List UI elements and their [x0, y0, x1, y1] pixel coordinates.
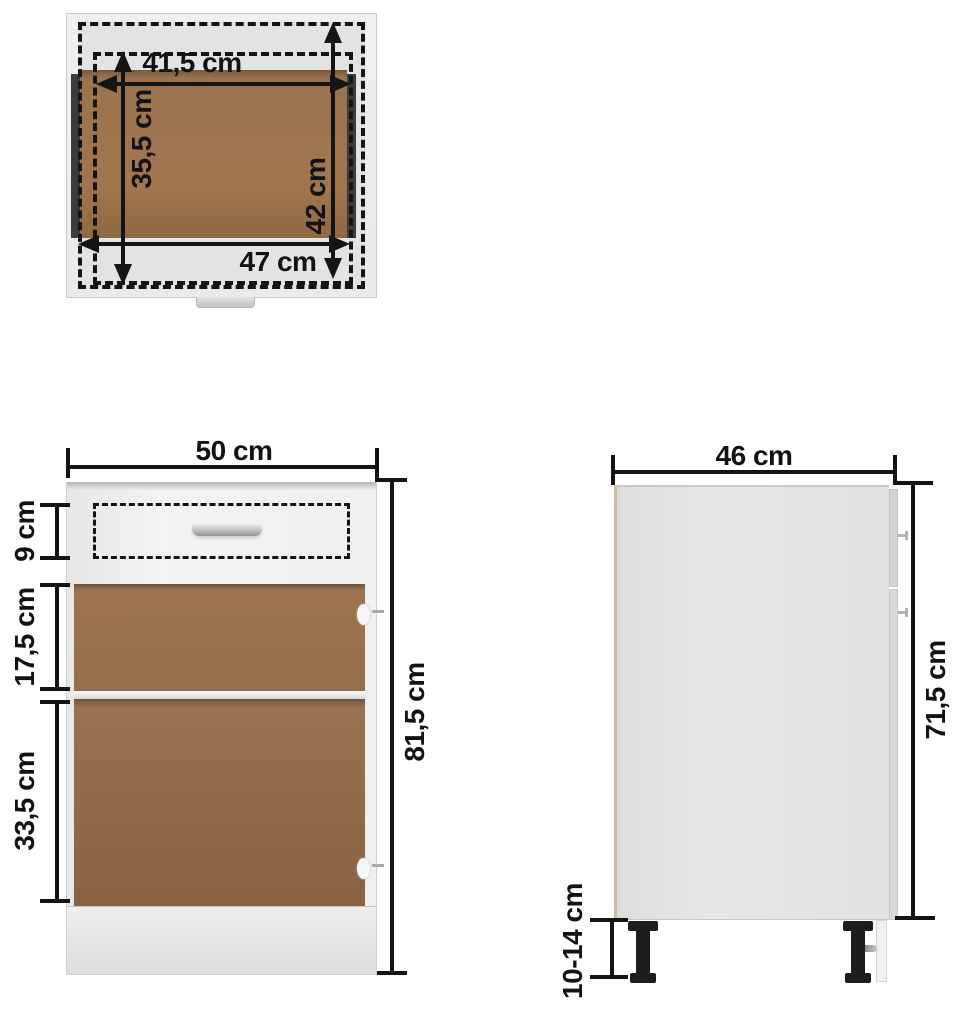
dim-tick — [590, 975, 628, 979]
dim-tick — [375, 448, 379, 482]
dim-tick — [611, 455, 615, 485]
dim-tick — [40, 503, 70, 507]
hinge-top-icon — [357, 604, 370, 625]
cabinet-top-edge — [67, 482, 376, 490]
dim-tick — [40, 556, 70, 560]
hinge-top-pin-icon — [372, 610, 384, 613]
dim-tick — [895, 916, 935, 920]
dim-tick — [895, 481, 933, 485]
dim-tick — [40, 687, 70, 691]
drawer-handle-icon — [192, 522, 262, 536]
dim-line-total-height — [390, 480, 394, 975]
drawer-handle-top-icon — [196, 297, 255, 308]
leg-right-foot — [845, 973, 871, 983]
dim-bracket-drawer — [55, 503, 59, 560]
door-front-edge — [889, 589, 898, 920]
dim-tick — [40, 583, 70, 587]
leg-left-stem — [636, 931, 650, 973]
dim-tick — [377, 478, 407, 482]
dim-tick — [66, 448, 70, 478]
leg-left-foot — [630, 973, 656, 983]
dim-bracket-upper — [55, 583, 59, 691]
leg-screw-icon — [865, 945, 877, 952]
leg-right-stem — [851, 931, 865, 973]
door-bottom-edge — [876, 920, 887, 982]
leg-right-plate — [843, 921, 873, 931]
cabinet-base-panel — [67, 906, 376, 974]
dimension-diagram: 41,5 cm 47 cm 35,5 cm 42 cm 50 cm — [0, 0, 958, 1020]
upper-opening-board — [74, 584, 365, 691]
dim-bracket-lower — [55, 700, 59, 903]
side-view: 46 cm 71,5 cm 10-14 cm — [540, 420, 958, 1020]
door-handle-side-bar-icon — [905, 608, 908, 617]
hinge-bottom-pin-icon — [372, 864, 384, 867]
dim-tick — [40, 700, 70, 704]
hinge-bottom-icon — [357, 858, 370, 879]
lower-opening-board — [74, 699, 365, 906]
dim-tick — [377, 971, 407, 975]
drawer-handle-side-bar-icon — [905, 531, 908, 540]
top-view: 41,5 cm 47 cm 35,5 cm 42 cm — [0, 0, 480, 330]
drawer-front-edge — [889, 489, 898, 587]
dim-tick — [40, 899, 70, 903]
shelf-edge — [74, 691, 365, 699]
dim-tick — [590, 918, 628, 922]
dim-line-body-height — [911, 483, 915, 920]
front-view: 50 cm 9 cm 17,5 cm — [0, 420, 480, 1020]
cabinet-side-panel — [614, 485, 889, 920]
dim-bracket-legs — [610, 920, 614, 979]
leg-left-plate — [628, 921, 658, 931]
dim-arrow-outer-depth — [324, 22, 342, 279]
